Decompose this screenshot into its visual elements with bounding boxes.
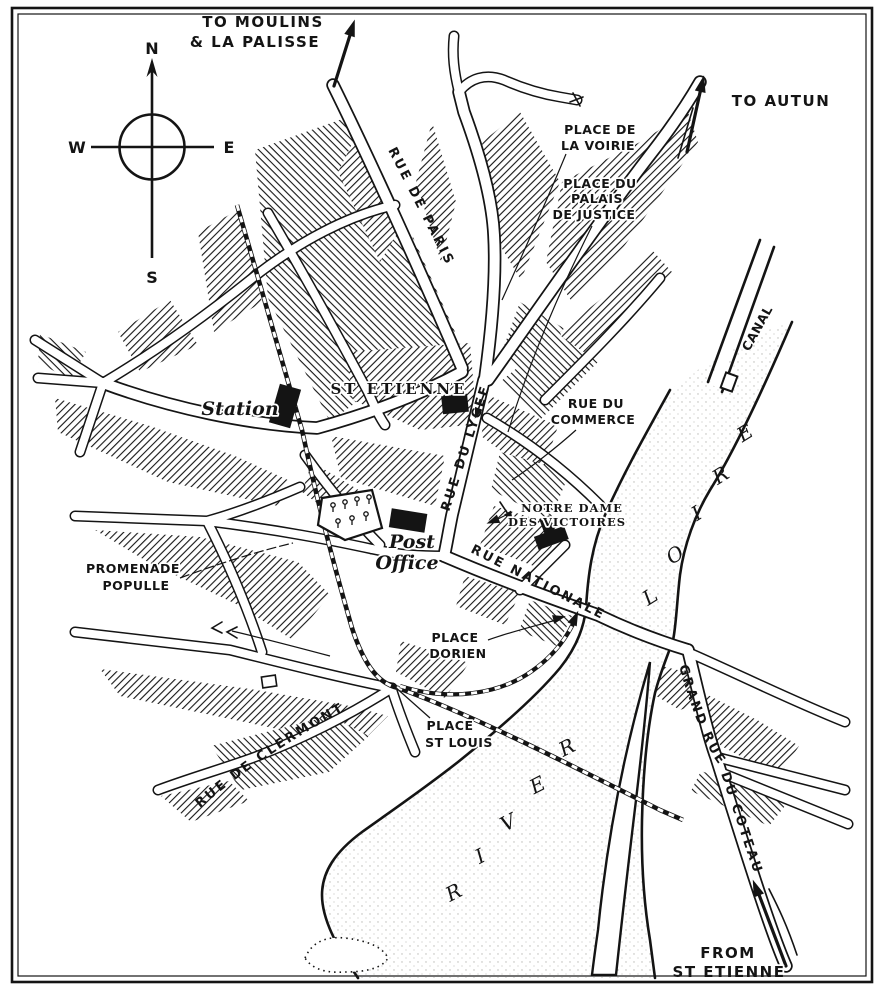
from-st-etienne-label-1: FROM bbox=[700, 944, 755, 962]
place-palais-label-2: PALAIS bbox=[571, 191, 623, 206]
place-dorien-label-1: PLACE bbox=[431, 630, 478, 645]
place-palais-label-3: DE JUSTICE bbox=[553, 207, 636, 222]
compass-w-label: W bbox=[68, 138, 86, 157]
st-etienne-school-label: ST ETIENNE bbox=[330, 380, 467, 398]
promenade-label-1: PROMENADE bbox=[86, 561, 180, 576]
place-palais-label-1: PLACE DU bbox=[563, 176, 636, 191]
compass-e-label: E bbox=[224, 138, 235, 157]
place-dorien-label-2: DORIEN bbox=[429, 646, 486, 661]
notre-dame-label-2: DES VICTOIRES bbox=[508, 515, 626, 529]
post-office-label-1: Post bbox=[388, 531, 435, 553]
map-canvas: TO MOULINS & LA PALISSE TO AUTUN FROM ST… bbox=[0, 0, 884, 1000]
town-map: TO MOULINS & LA PALISSE TO AUTUN FROM ST… bbox=[0, 0, 884, 1000]
to-autun-label: TO AUTUN bbox=[732, 92, 831, 110]
rue-du-commerce-label-1: RUE DU bbox=[568, 396, 624, 411]
place-voirie-label-1: PLACE DE bbox=[564, 122, 636, 137]
compass-n-label: N bbox=[145, 39, 158, 58]
from-st-etienne-label-2: ST ETIENNE bbox=[673, 963, 786, 981]
station-label: Station bbox=[201, 398, 278, 420]
place-st-louis-label-1: PLACE bbox=[426, 718, 473, 733]
place-voirie-label-2: LA VOIRIE bbox=[561, 138, 635, 153]
compass-s-label: S bbox=[146, 268, 158, 287]
small-building-outline bbox=[261, 675, 276, 688]
rue-du-commerce-label-2: COMMERCE bbox=[551, 412, 636, 427]
notre-dame-label-1: NOTRE DAME bbox=[521, 501, 623, 515]
post-office-label-2: Office bbox=[375, 552, 438, 574]
to-moulins-label-1: TO MOULINS bbox=[202, 13, 324, 31]
promenade-label-2: POPULLE bbox=[102, 578, 169, 593]
to-moulins-label-2: & LA PALISSE bbox=[190, 33, 320, 51]
place-st-louis-label-2: ST LOUIS bbox=[425, 735, 493, 750]
